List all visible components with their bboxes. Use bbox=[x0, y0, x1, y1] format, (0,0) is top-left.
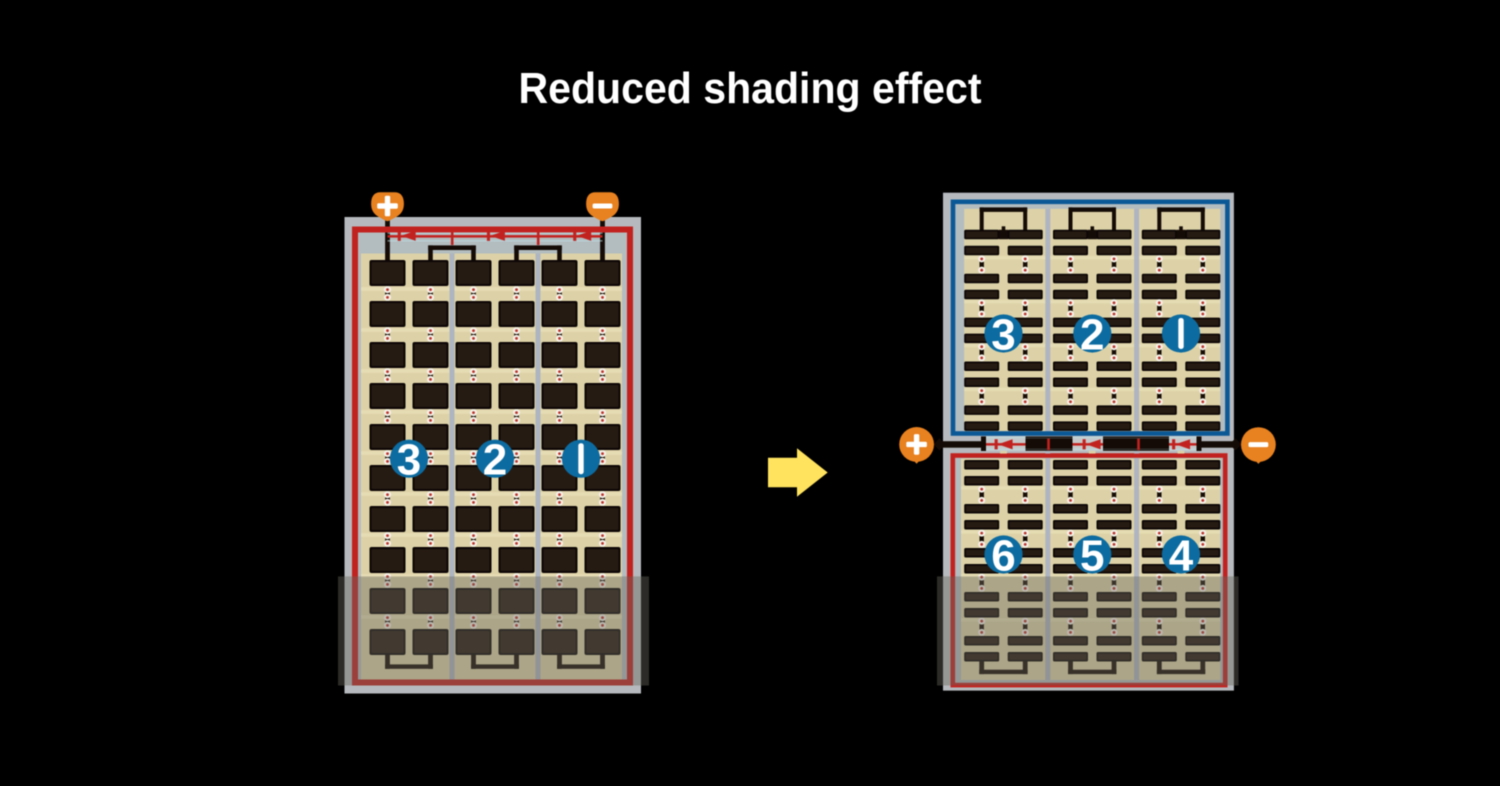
svg-text:6: 6 bbox=[991, 531, 1015, 580]
svg-text:3: 3 bbox=[991, 310, 1015, 359]
svg-text:2: 2 bbox=[483, 436, 507, 485]
svg-text:2: 2 bbox=[1080, 310, 1104, 359]
svg-text:3: 3 bbox=[397, 436, 421, 485]
svg-text:Reduced shading effect: Reduced shading effect bbox=[519, 64, 982, 113]
svg-text:5: 5 bbox=[1080, 531, 1104, 580]
svg-text:4: 4 bbox=[1169, 531, 1194, 580]
